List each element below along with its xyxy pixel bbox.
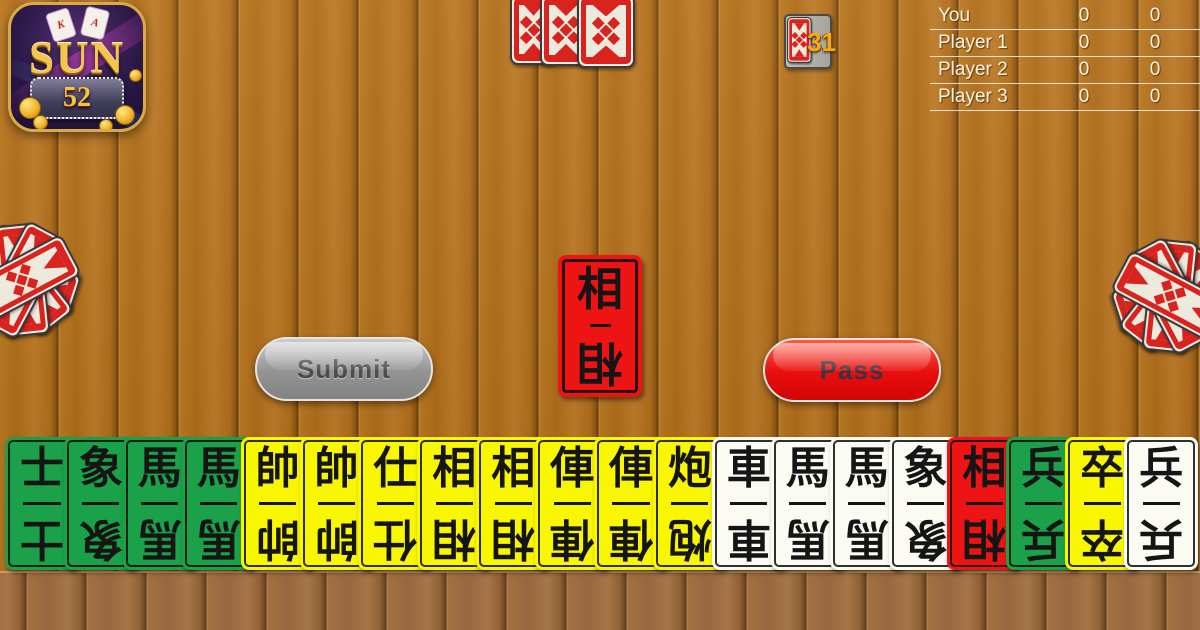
card-divider xyxy=(554,502,591,505)
player-score: 0 xyxy=(1116,32,1194,54)
game-table: K A SUN 52 You00Player 100Player 200Play… xyxy=(0,0,1200,630)
card-divider xyxy=(318,502,355,505)
played-card-face: 相 相 xyxy=(562,259,638,393)
card-back xyxy=(577,0,635,68)
played-card-character: 相 xyxy=(565,267,635,313)
player-score: 0 xyxy=(1052,32,1116,54)
card-divider xyxy=(590,324,611,327)
draw-pile: 31 xyxy=(784,14,832,69)
sun52-logo: K A SUN 52 xyxy=(8,2,146,132)
logo-card-letter: K xyxy=(56,18,67,32)
logo-number-plaque: 52 xyxy=(30,77,124,119)
coin-icon xyxy=(33,115,48,130)
player-name: Player 2 xyxy=(930,59,1052,81)
card-divider xyxy=(612,502,649,505)
player-score: 0 xyxy=(1116,5,1194,27)
player-name: Player 3 xyxy=(930,86,1052,108)
card-divider xyxy=(200,502,237,505)
scoreboard: You00Player 100Player 200Player 300 xyxy=(930,3,1200,111)
logo-card-letter: A xyxy=(90,16,100,29)
card-divider xyxy=(966,502,1003,505)
card-divider xyxy=(848,502,885,505)
scoreboard-row-player-3: Player 300 xyxy=(930,84,1200,111)
card-divider xyxy=(23,502,60,505)
card-divider xyxy=(907,502,944,505)
card-divider xyxy=(377,502,414,505)
coin-icon xyxy=(99,119,113,132)
deck-count: 31 xyxy=(807,27,836,58)
card-face: 兵兵 xyxy=(1127,440,1195,567)
card-divider xyxy=(141,502,178,505)
card-divider xyxy=(789,502,826,505)
pass-button[interactable]: Pass xyxy=(763,338,941,402)
card-divider xyxy=(259,502,296,505)
submit-button[interactable]: Submit xyxy=(255,337,433,401)
player-score: 0 xyxy=(1052,5,1116,27)
player-score: 0 xyxy=(1116,59,1194,81)
played-card-character-flipped: 相 xyxy=(565,339,635,385)
card-character: 兵 xyxy=(1129,447,1193,491)
card-divider xyxy=(1143,502,1180,505)
player-name: Player 1 xyxy=(930,32,1052,54)
card-divider xyxy=(495,502,532,505)
card-divider xyxy=(82,502,119,505)
card-divider xyxy=(1084,502,1121,505)
card-divider xyxy=(1025,502,1062,505)
scoreboard-row-you: You00 xyxy=(930,3,1200,30)
played-card: 相 相 xyxy=(558,255,642,397)
player-score: 0 xyxy=(1116,86,1194,108)
card-divider xyxy=(730,502,767,505)
wood-bottom-strip xyxy=(0,571,1200,630)
card-character-flipped: 兵 xyxy=(1129,516,1193,560)
player-name: You xyxy=(930,5,1052,27)
card-divider xyxy=(671,502,708,505)
logo-number: 52 xyxy=(63,82,91,114)
hand-card-20-white[interactable]: 兵兵 xyxy=(1124,437,1198,570)
scoreboard-row-player-1: Player 100 xyxy=(930,30,1200,57)
player-score: 0 xyxy=(1052,59,1116,81)
coin-icon xyxy=(115,105,135,125)
scoreboard-row-player-2: Player 200 xyxy=(930,57,1200,84)
player-score: 0 xyxy=(1052,86,1116,108)
coin-icon xyxy=(129,69,142,82)
card-divider xyxy=(436,502,473,505)
